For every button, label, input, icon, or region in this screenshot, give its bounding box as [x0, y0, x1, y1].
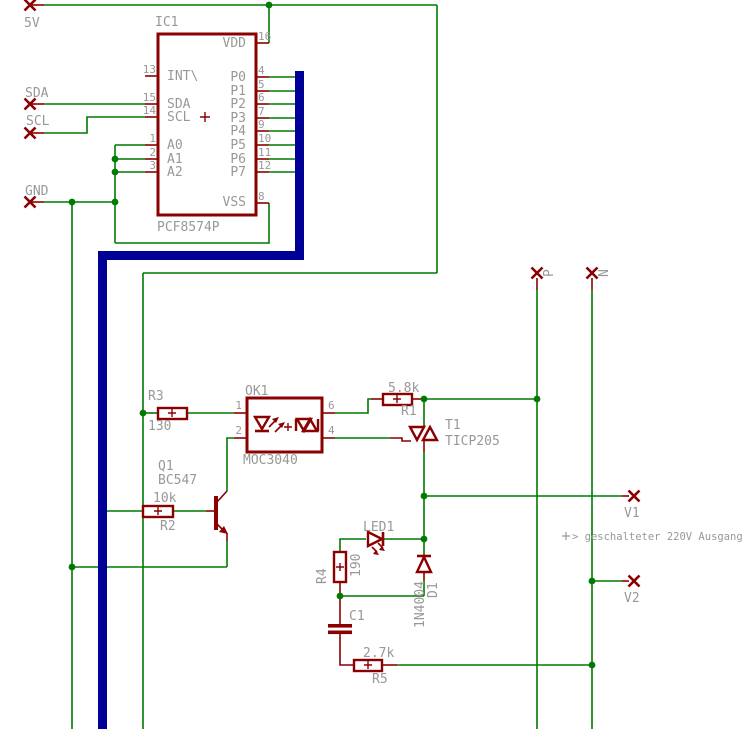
d1-triangle	[417, 557, 431, 572]
r3-name: R3	[148, 389, 164, 404]
junction-dot	[421, 396, 428, 403]
schematic-canvas: 5V SDA SCL GND P N V1 V2 IC1 PCF8574P IN…	[0, 0, 750, 729]
r4-origin-cross	[336, 563, 344, 571]
junction-dot	[589, 662, 596, 669]
ic1-pin-number: 7	[258, 105, 265, 118]
t1-value: TICP205	[445, 434, 500, 449]
terminal-x-v2[interactable]	[629, 576, 640, 587]
junction-dot	[69, 199, 76, 206]
ic1-pin-name: VSS	[223, 195, 246, 210]
component-led1[interactable]	[368, 532, 385, 555]
ok1-origin-cross	[284, 423, 292, 431]
wire-ok1-pin6[interactable]	[335, 399, 371, 413]
component-r3[interactable]	[158, 408, 187, 419]
junction-dot	[421, 536, 428, 543]
r1-origin-cross	[393, 395, 401, 403]
led1-name: LED1	[363, 520, 394, 535]
junction-dot	[69, 564, 76, 571]
bus-horizontal	[98, 251, 304, 260]
r1-name: R1	[401, 404, 417, 419]
junction-dot	[112, 156, 119, 163]
c1-name: C1	[349, 609, 365, 624]
ok1-pin-number: 4	[328, 424, 335, 437]
junction-dot	[266, 2, 273, 9]
r3-value: 130	[148, 419, 171, 434]
ic1-pin-number: 11	[258, 146, 271, 159]
t1-triangle-down	[410, 427, 424, 440]
t1-triangle-up	[423, 427, 437, 440]
r1-value: 5.8k	[388, 381, 419, 396]
ic1-pin-name: A0	[167, 138, 183, 153]
wire-led-left[interactable]	[340, 539, 366, 552]
c1-lead	[340, 634, 354, 665]
ic1-pin-name: A2	[167, 165, 183, 180]
r3-origin-cross	[168, 409, 176, 417]
r2-value: 10k	[153, 491, 177, 506]
net-label-sda: SDA	[25, 86, 49, 101]
ic1-pin-number: 12	[258, 159, 271, 172]
r4-value: 190	[349, 554, 364, 577]
ok1-value: MOC3040	[243, 453, 298, 468]
junction-dot	[337, 593, 344, 600]
junction-dot	[534, 396, 541, 403]
component-r5[interactable]	[354, 660, 397, 671]
ok1-pin-number: 2	[235, 424, 242, 437]
r2-origin-cross	[154, 507, 162, 515]
ok1-name: OK1	[245, 384, 268, 399]
r2-name: R2	[160, 519, 176, 534]
ic1-pin-number: 6	[258, 91, 265, 104]
junction-dot	[589, 578, 596, 585]
c1-plate-top	[328, 624, 352, 628]
component-r4[interactable]	[334, 552, 346, 596]
net-label-v1: V1	[624, 506, 640, 521]
ic1-pin-number: 3	[149, 159, 156, 172]
ic1-pin-number: 5	[258, 78, 265, 91]
junction-dot	[112, 199, 119, 206]
q1-value: BC547	[158, 473, 197, 488]
ok1-body	[247, 398, 322, 452]
junction-dot	[140, 410, 147, 417]
r5-value: 2.7k	[363, 646, 394, 661]
component-ok1[interactable]	[234, 398, 335, 452]
d1-value: 1N4004	[413, 581, 428, 628]
ic1-pin-name: VDD	[223, 36, 247, 51]
component-d1[interactable]	[417, 556, 431, 580]
ic1-pin-name: SCL	[167, 110, 191, 125]
ic1-pin-name: P4	[230, 124, 246, 139]
ic1-pin-number: 15	[143, 91, 156, 104]
net-label-gnd: GND	[25, 184, 49, 199]
q1-name: Q1	[158, 459, 174, 474]
ic1-pin-number: 10	[258, 132, 271, 145]
component-q1[interactable]	[216, 491, 228, 541]
ic1-value: PCF8574P	[157, 220, 220, 235]
r4-name: R4	[315, 568, 330, 584]
ic1-pin-number: 14	[143, 104, 157, 117]
net-label-scl: SCL	[26, 114, 50, 129]
ic1-pin-name: P5	[230, 138, 246, 153]
component-c1[interactable]	[328, 596, 354, 665]
bus-vertical-left	[98, 251, 107, 729]
ic1-pin-name: P7	[230, 165, 246, 180]
ic1-name: IC1	[155, 15, 178, 30]
net-label-p: P	[542, 269, 557, 277]
component-t1[interactable]	[390, 425, 437, 452]
bus-vertical-right	[295, 71, 304, 260]
ok1-pin-number: 6	[328, 399, 335, 412]
net-label-5v: 5V	[24, 16, 40, 31]
component-ic1[interactable]	[145, 34, 269, 215]
wire-ok1-pin2[interactable]	[227, 438, 234, 491]
junction-dot	[112, 169, 119, 176]
q1-collector	[217, 491, 227, 502]
ok1-triac-triangle-up	[303, 419, 317, 431]
schematic-svg: 5V SDA SCL GND P N V1 V2 IC1 PCF8574P IN…	[0, 0, 750, 729]
r5-origin-cross	[364, 661, 372, 669]
ok1-led-triangle	[255, 417, 269, 429]
ic1-pin-name: P2	[230, 97, 246, 112]
ic1-pin-number: 9	[258, 118, 265, 131]
c1-plate-bottom	[328, 631, 352, 635]
ic1-pin-number: 4	[258, 64, 265, 77]
led1-arrowhead	[373, 550, 379, 555]
wire-scl[interactable]	[44, 117, 145, 133]
labels: 5V SDA SCL GND P N V1 V2 IC1 PCF8574P IN…	[24, 15, 743, 687]
ic1-pin-number: 2	[149, 146, 156, 159]
net-wires	[44, 5, 622, 729]
ic1-pin-name: P0	[230, 70, 246, 85]
annotation-origin-cross	[562, 532, 570, 540]
t1-gate-lead	[390, 438, 411, 441]
ic1-pin-number: 16	[258, 30, 271, 43]
data-bus[interactable]	[98, 71, 304, 729]
led1-arrowhead	[379, 546, 385, 551]
ic1-pin-number: 13	[143, 63, 156, 76]
terminal-x-v1[interactable]	[629, 491, 640, 502]
annotation-output-note: > geschalteter 220V Ausgang	[572, 531, 743, 543]
ic1-pin-number: 8	[258, 190, 265, 203]
terminals	[25, 0, 640, 587]
t1-name: T1	[445, 418, 461, 433]
net-label-v2: V2	[624, 591, 640, 606]
d1-name: D1	[426, 582, 441, 598]
terminal-x-n[interactable]	[587, 268, 598, 279]
ic1-pin-name: INT\	[167, 69, 198, 84]
junction-dot	[421, 493, 428, 500]
r5-name: R5	[372, 672, 388, 687]
ok1-pin-number: 1	[235, 399, 242, 412]
ic1-pin-number: 1	[149, 132, 156, 145]
terminal-x-p[interactable]	[532, 268, 543, 279]
ic1-origin-cross	[200, 112, 210, 122]
net-label-n: N	[597, 269, 612, 277]
